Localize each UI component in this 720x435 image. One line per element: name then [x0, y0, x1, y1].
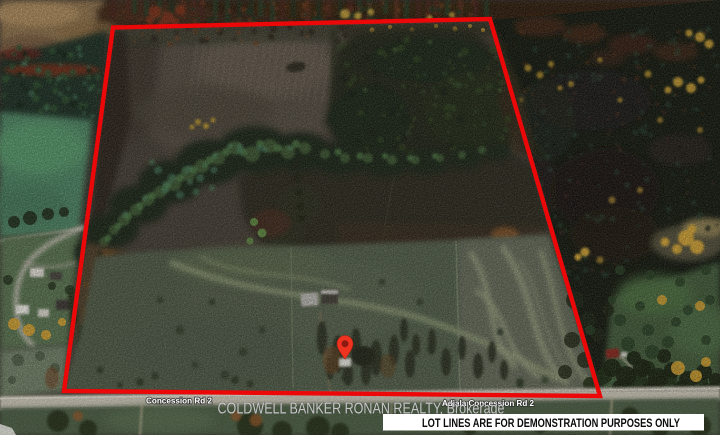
svg-text:LOT LINES ARE FOR DEMONSTRATIO: LOT LINES ARE FOR DEMONSTRATION PURPOSES… — [422, 416, 680, 430]
svg-text:Concession Rd 2: Concession Rd 2 — [146, 396, 212, 405]
